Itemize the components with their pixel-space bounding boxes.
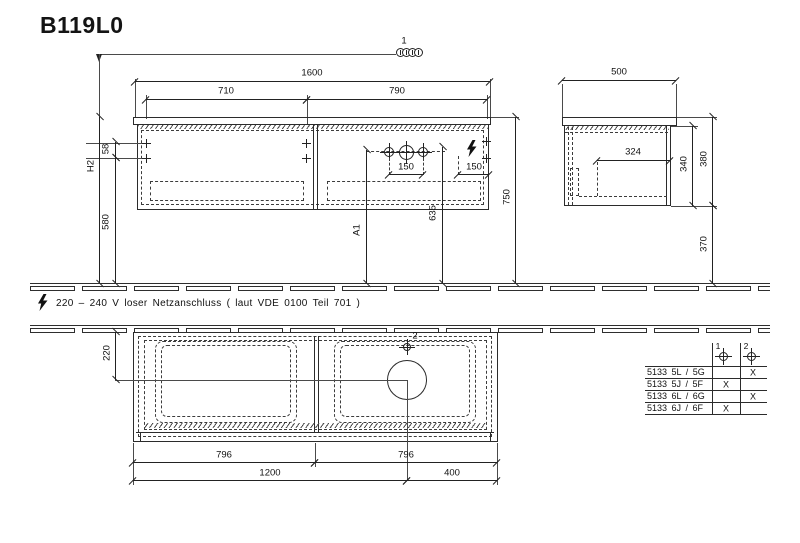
dim-label-400: 400 (444, 468, 460, 478)
dim-label-150-right: 150 (466, 162, 482, 172)
drill-hole-2-icon (403, 343, 411, 351)
left-drawer-dashed (150, 181, 304, 201)
table-cell: X (723, 404, 729, 413)
extension-line (677, 117, 717, 118)
lightning-icon (37, 294, 48, 311)
interior-dashed (579, 196, 667, 197)
partition-line (318, 336, 319, 432)
dim-label-635: 635 (428, 205, 438, 221)
drain-hole-icon (399, 145, 414, 160)
drain-centerline (407, 380, 408, 480)
drawer-front-tick (490, 432, 491, 441)
adjust-cross-icon (302, 139, 311, 148)
dim-150-right (458, 174, 489, 175)
table-row-model: 5133 5L / 5G (647, 368, 705, 377)
cabinet-outline-side (564, 125, 671, 206)
partition-line (317, 124, 318, 210)
dim-label-340: 340 (679, 156, 689, 172)
table-header-2: 2 (744, 342, 749, 351)
dim-220 (115, 332, 116, 380)
technical-drawing-canvas: B119L0 1 1600 710 790 150 150 (0, 0, 800, 543)
table-cell: X (750, 368, 756, 377)
adjust-cross-icon (482, 137, 491, 146)
dim-label-380: 380 (699, 151, 709, 167)
extension-line (135, 79, 136, 117)
dim-H2 (99, 117, 100, 284)
lightning-icon (466, 140, 477, 157)
floor-hatch-band (30, 283, 770, 291)
dim-324 (597, 160, 670, 161)
drain-reference-line (115, 380, 407, 381)
dim-340 (692, 126, 693, 206)
extension-line (562, 84, 563, 117)
partition-line (313, 124, 314, 210)
extension-line (99, 54, 100, 117)
dim-label-220: 220 (102, 345, 112, 361)
electrical-note: 220 – 240 V loser Netzanschluss ( laut V… (56, 298, 360, 309)
extension-line (490, 79, 491, 117)
front-panel-line (666, 126, 667, 206)
dim-750 (515, 117, 516, 284)
interior-dashed (144, 429, 487, 430)
dim-580 (115, 158, 116, 284)
hole-2-label: 2 (412, 331, 417, 341)
adjust-cross-icon (142, 154, 151, 163)
dim-label-58: 58 (101, 144, 111, 155)
dim-label-H2: H2 (86, 160, 96, 172)
adjust-cross-icon (482, 154, 491, 163)
dim-796-right (315, 462, 497, 463)
dim-790 (307, 99, 487, 100)
dim-label-1600: 1600 (301, 68, 322, 78)
dim-796-left (133, 462, 315, 463)
dim-label-324: 324 (625, 147, 641, 157)
dim-A1 (366, 150, 367, 284)
dim-635 (442, 147, 443, 284)
dim-label-790: 790 (389, 86, 405, 96)
dim-label-150-left: 150 (398, 162, 414, 172)
adjust-cross-icon (302, 154, 311, 163)
table-row-model: 5133 5J / 5F (647, 380, 703, 389)
dim-380 (712, 117, 713, 206)
drill-hole-icon (719, 352, 728, 361)
dim-400 (407, 480, 497, 481)
table-row-model: 5133 6L / 6G (647, 392, 705, 401)
marker-label: 1 (401, 36, 406, 46)
table-header-1: 1 (716, 342, 721, 351)
screw-icon (414, 48, 423, 57)
dim-label-370: 370 (699, 236, 709, 252)
screws-icon (396, 48, 423, 57)
table-cell: X (750, 392, 756, 401)
drawer-front-tick (140, 432, 141, 441)
extension-dashed (597, 162, 598, 196)
dim-label-1200: 1200 (259, 468, 280, 478)
dim-1200 (133, 480, 407, 481)
drill-hole-icon (384, 147, 394, 157)
extension-line (315, 443, 316, 467)
dim-370 (712, 206, 713, 284)
dim-label-A1: A1 (352, 224, 362, 236)
dim-150-left (389, 174, 423, 175)
dim-500 (562, 80, 676, 81)
page-title: B119L0 (40, 12, 124, 39)
table-cell: X (723, 380, 729, 389)
siphon-cutout-dashed (570, 168, 579, 196)
drill-hole-icon (418, 147, 428, 157)
drill-hole-icon (747, 352, 756, 361)
table-row-model: 5133 6J / 6F (647, 404, 703, 413)
dim-710 (146, 99, 307, 100)
table-row-line (645, 414, 767, 415)
dim-1600 (135, 81, 490, 82)
interior-dashed (565, 132, 668, 133)
back-panel-dashed (568, 127, 569, 205)
marker-leader-line (100, 54, 396, 55)
dim-label-750: 750 (502, 189, 512, 205)
dim-label-500: 500 (611, 67, 627, 77)
dim-label-710: 710 (218, 86, 234, 96)
partition-line (314, 336, 315, 432)
dim-label-796-right: 796 (398, 450, 414, 460)
left-drawer-plan-inner (161, 345, 291, 417)
drawer-front-line (136, 432, 494, 433)
front-rail-hatch (144, 423, 487, 428)
dim-label-796-left: 796 (216, 450, 232, 460)
adjust-cross-icon (142, 139, 151, 148)
extension-line (676, 84, 677, 117)
right-drawer-dashed (327, 181, 481, 201)
dim-label-580: 580 (101, 214, 111, 230)
